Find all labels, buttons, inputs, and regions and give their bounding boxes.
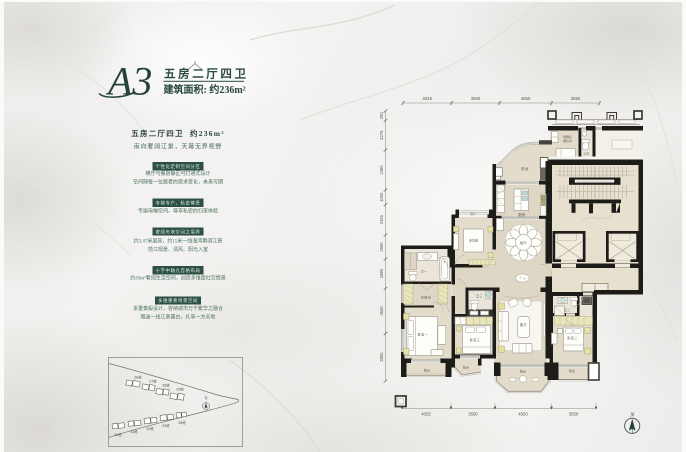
- svg-text:客厅: 客厅: [520, 322, 528, 327]
- svg-text:29栋: 29栋: [176, 387, 184, 392]
- svg-text:1000: 1000: [379, 192, 384, 202]
- svg-text:(赠送间): (赠送间): [563, 139, 573, 143]
- svg-text:飘台: 飘台: [470, 212, 476, 216]
- svg-text:27栋: 27栋: [149, 379, 157, 384]
- svg-text:N: N: [205, 396, 208, 401]
- svg-text:28栋: 28栋: [162, 383, 170, 388]
- svg-text:26栋: 26栋: [134, 375, 142, 380]
- svg-text:3550: 3550: [569, 412, 579, 417]
- svg-text:建筑面积: 约236m²: 建筑面积: 约236m²: [163, 83, 246, 96]
- svg-text:卫三: 卫三: [476, 294, 482, 298]
- svg-text:4275: 4275: [379, 130, 384, 140]
- svg-text:4025: 4025: [422, 96, 432, 101]
- svg-text:2850: 2850: [379, 352, 384, 362]
- svg-text:4025: 4025: [421, 412, 431, 417]
- svg-text:阳台: 阳台: [424, 368, 431, 373]
- svg-text:4550: 4550: [521, 96, 531, 101]
- svg-text:33栋: 33栋: [162, 423, 170, 428]
- svg-text:200: 200: [379, 112, 384, 120]
- svg-text:1890: 1890: [379, 268, 384, 278]
- svg-text:餐厅: 餐厅: [520, 240, 527, 245]
- svg-text:卧室二: 卧室二: [567, 335, 577, 340]
- svg-text:3550: 3550: [468, 412, 478, 417]
- svg-text:保姆房: 保姆房: [563, 134, 572, 139]
- svg-text:2425: 2425: [379, 214, 384, 224]
- svg-text:阳台: 阳台: [463, 366, 469, 370]
- svg-text:五房二厅四卫: 五房二厅四卫: [164, 67, 249, 81]
- svg-text:35栋: 35栋: [178, 420, 186, 425]
- svg-text:阳台: 阳台: [520, 369, 527, 374]
- svg-text:厨房: 厨房: [518, 212, 526, 217]
- svg-text:阳台: 阳台: [521, 166, 529, 171]
- svg-text:32栋: 32栋: [146, 426, 154, 431]
- svg-text:4550: 4550: [379, 306, 384, 316]
- svg-text:衣帽间: 衣帽间: [421, 294, 431, 299]
- svg-text:阳台: 阳台: [569, 368, 576, 373]
- svg-text:3550: 3550: [471, 96, 481, 101]
- svg-text:卧室一: 卧室一: [418, 332, 428, 337]
- svg-text:3550: 3550: [571, 96, 581, 101]
- svg-text:卫二: 卫二: [564, 308, 570, 312]
- svg-text:多功能: 多功能: [469, 238, 478, 243]
- svg-text:30栋: 30栋: [114, 432, 122, 437]
- svg-text:卫一: 卫一: [421, 270, 428, 274]
- svg-text:4550: 4550: [518, 412, 528, 417]
- svg-text:2350: 2350: [379, 165, 384, 175]
- svg-text:31栋: 31栋: [130, 429, 138, 434]
- svg-text:2550: 2550: [379, 242, 384, 252]
- svg-text:N: N: [629, 413, 635, 419]
- svg-text:公卫: 公卫: [583, 152, 589, 156]
- svg-text:卧室三: 卧室三: [470, 337, 480, 342]
